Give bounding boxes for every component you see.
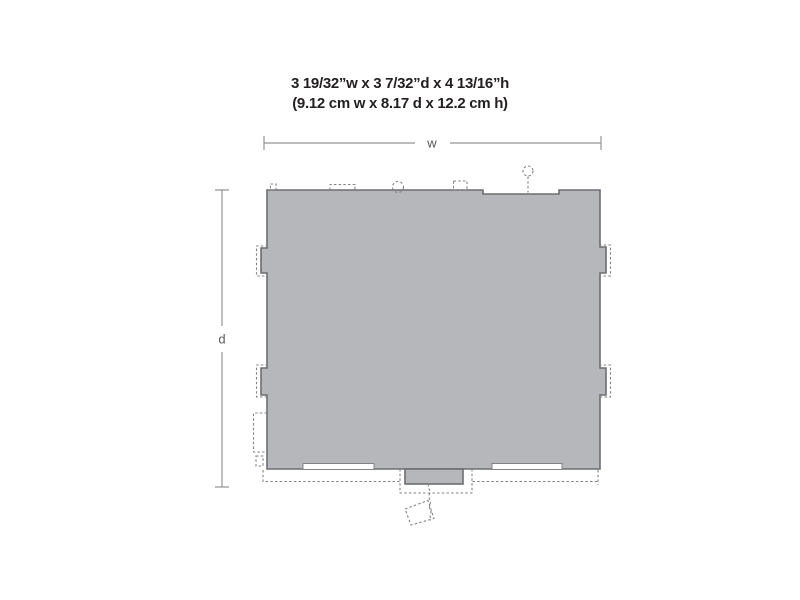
- dimensions-metric-text: (9.12 cm w x 8.17 d x 12.2 cm h): [292, 95, 508, 112]
- top-left-dashed-tab: [271, 184, 277, 190]
- wire-and-plug-dashed: [405, 484, 434, 525]
- left-bottom-dashed-mark: [256, 456, 263, 466]
- base-dashed-left: [263, 470, 400, 482]
- footprint-diagram-page: 3 19/32”w x 3 7/32”d x 4 13/16”h (9.12 c…: [0, 0, 800, 600]
- width-label: w: [426, 136, 437, 151]
- depth-dimension-line: d: [215, 190, 229, 487]
- dimension-title: 3 19/32”w x 3 7/32”d x 4 13/16”h (9.12 c…: [291, 75, 509, 112]
- top-dashed-rect: [454, 181, 468, 190]
- plug-dashed-shape: [405, 501, 434, 526]
- bottom-slot-right: [492, 464, 562, 470]
- footprint-diagram: 3 19/32”w x 3 7/32”d x 4 13/16”h (9.12 c…: [0, 0, 800, 600]
- dimensions-imperial-text: 3 19/32”w x 3 7/32”d x 4 13/16”h: [291, 75, 509, 92]
- bottom-protrusion: [405, 469, 463, 484]
- left-dashed-box-lower: [254, 413, 268, 452]
- top-stem-dashed-circle: [523, 166, 533, 176]
- top-edge-dashed-details: [271, 166, 534, 193]
- depth-label: d: [218, 332, 225, 347]
- bottom-slot-left: [303, 464, 374, 470]
- building-footprint-outline: [261, 190, 606, 469]
- width-dimension-line: w: [264, 136, 601, 151]
- top-dashed-segment: [330, 185, 355, 191]
- wire-dashed-line: [428, 484, 431, 521]
